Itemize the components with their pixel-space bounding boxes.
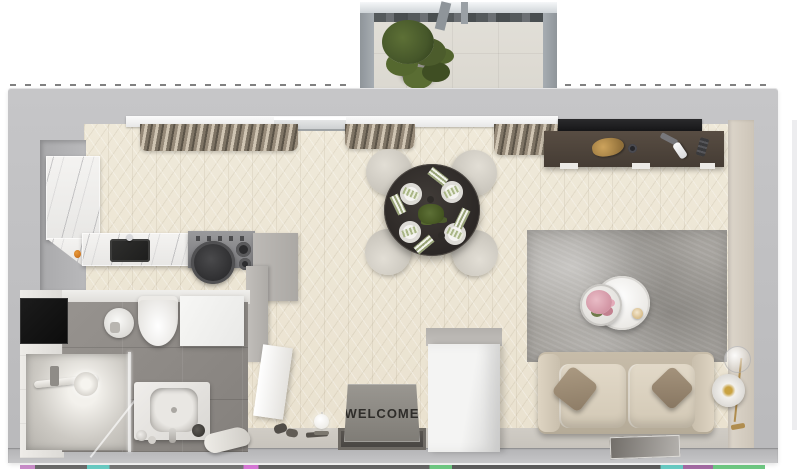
- welcome-mat-text: WELCOME: [345, 406, 420, 421]
- vanity-knob-icon: [136, 430, 147, 441]
- balcony-rail-right: [543, 2, 557, 94]
- shower-head-icon: [74, 372, 98, 396]
- console-foot: [700, 163, 715, 169]
- vanity-knob-icon: [148, 436, 156, 444]
- ball-floor-lamp: [314, 414, 329, 429]
- sofa-armrest: [692, 354, 714, 432]
- cooktop-knobs: [196, 236, 248, 241]
- ball-lamp-base: [314, 431, 329, 435]
- edge-artifact-bottom: [20, 465, 765, 469]
- curtain-middle: [345, 124, 415, 149]
- orange-fruit: [74, 250, 81, 258]
- sink-faucet-icon: [126, 234, 133, 241]
- console-foot: [632, 163, 650, 169]
- curtain-left: [140, 124, 298, 151]
- gold-cup-icon: [632, 308, 643, 319]
- green-centerpiece: [418, 204, 444, 224]
- black-niche: [20, 298, 68, 344]
- welcome-mat: WELCOME: [344, 384, 420, 442]
- shower-tray: [26, 354, 130, 450]
- dark-jar-icon: [192, 424, 205, 437]
- pergola-beam: [461, 2, 468, 24]
- balcony-glass-top: [360, 2, 557, 13]
- floor-art: [610, 435, 681, 459]
- shower-valve-icon: [50, 366, 59, 386]
- floor-lamp-shade: [712, 374, 745, 407]
- bowl-icon: [628, 144, 637, 153]
- kitchen-sink: [110, 239, 150, 262]
- potted-plant: [382, 20, 434, 64]
- edge-artifact-right: [792, 120, 797, 430]
- console-foot: [560, 163, 578, 169]
- floor-plan-render: WELCOME: [0, 0, 800, 474]
- floor-lamp-globe: [724, 346, 751, 373]
- cup-icon: [438, 232, 445, 239]
- cup-icon: [427, 196, 434, 203]
- edge-artifact-top: [565, 84, 770, 86]
- burner-icon: [236, 242, 251, 257]
- edge-artifact-top: [10, 84, 355, 86]
- washing-machine: [180, 296, 244, 346]
- cooking-pan: [191, 241, 235, 284]
- balcony-rail-left: [360, 2, 374, 94]
- flower-bouquet: [586, 290, 612, 314]
- vanity-faucet-icon: [169, 428, 176, 443]
- basin-drain-icon: [171, 407, 177, 413]
- kitchen-counter-vertical: [46, 156, 100, 240]
- toilet-paper-icon: [110, 322, 120, 333]
- shower-glass-panel: [128, 352, 131, 452]
- white-wardrobe: [428, 344, 500, 452]
